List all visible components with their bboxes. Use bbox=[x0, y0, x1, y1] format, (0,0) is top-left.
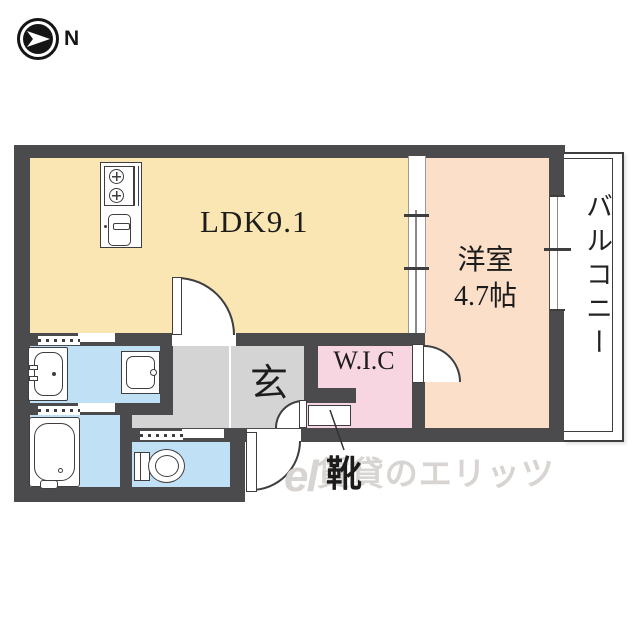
bedroom-door-leaf bbox=[412, 344, 424, 383]
ldk-door-leaf bbox=[172, 277, 182, 335]
partition-stile bbox=[415, 210, 417, 333]
entrance-label: 玄 bbox=[250, 352, 288, 407]
entry-door-leaf bbox=[246, 432, 257, 492]
washbasin-tap bbox=[29, 365, 38, 370]
wall-bath-toilet bbox=[120, 403, 132, 487]
wall-left bbox=[14, 145, 30, 502]
bedroom-size: 4.7帖 bbox=[422, 279, 549, 315]
wall-wic-stub bbox=[304, 388, 356, 403]
sink-faucet-dot bbox=[104, 225, 107, 228]
stove-edge-lines bbox=[134, 166, 139, 206]
shoe-label: 靴 bbox=[326, 445, 362, 497]
bathroom-door-track bbox=[78, 403, 115, 412]
wic-door-leaf bbox=[299, 400, 307, 428]
ldk-label: LDK9.1 bbox=[200, 204, 308, 240]
compass-north-label: N bbox=[64, 27, 79, 51]
bathroom-sliding-door bbox=[38, 406, 80, 415]
balcony-area: バルコニー bbox=[564, 152, 624, 442]
washroom-sliding-door bbox=[38, 336, 80, 345]
stove-burner bbox=[109, 169, 124, 184]
watermark-logo: el bbox=[284, 452, 317, 501]
partition-tick bbox=[404, 214, 429, 217]
washroom-door-track bbox=[78, 333, 115, 342]
wall-entry-side bbox=[230, 438, 245, 502]
washbasin-tap bbox=[29, 376, 38, 381]
balcony-window bbox=[550, 195, 565, 311]
washbasin-bowl bbox=[34, 352, 63, 396]
toilet-seat bbox=[155, 455, 179, 477]
wall-top bbox=[14, 145, 565, 158]
bathtub-drain bbox=[58, 468, 63, 473]
wall-wic-bedroom bbox=[412, 382, 425, 428]
bedroom-name: 洋室 bbox=[422, 243, 549, 279]
wic-label: W.I.C bbox=[316, 346, 412, 376]
toilet-sliding-door bbox=[140, 431, 183, 440]
toilet-tank-line bbox=[140, 453, 141, 480]
watermark: el賃貸のエリッツ bbox=[284, 447, 555, 502]
window-center-line bbox=[557, 197, 559, 309]
sink-faucet bbox=[113, 223, 130, 230]
bedroom-label: 洋室 4.7帖 bbox=[422, 243, 549, 316]
bathtub-inner bbox=[34, 423, 75, 481]
floorplan-canvas: バルコニー bbox=[0, 0, 640, 640]
washbasin-drain bbox=[52, 372, 56, 376]
washer-pan-drain bbox=[150, 369, 157, 376]
wall-bottom-west bbox=[14, 487, 245, 502]
genkan-step-line bbox=[229, 345, 231, 428]
toilet-door-track bbox=[182, 429, 224, 438]
stove-burner bbox=[109, 188, 124, 203]
kitchen-sink bbox=[108, 214, 131, 246]
bathtub-step bbox=[40, 480, 58, 489]
balcony-label: バルコニー bbox=[578, 192, 617, 362]
